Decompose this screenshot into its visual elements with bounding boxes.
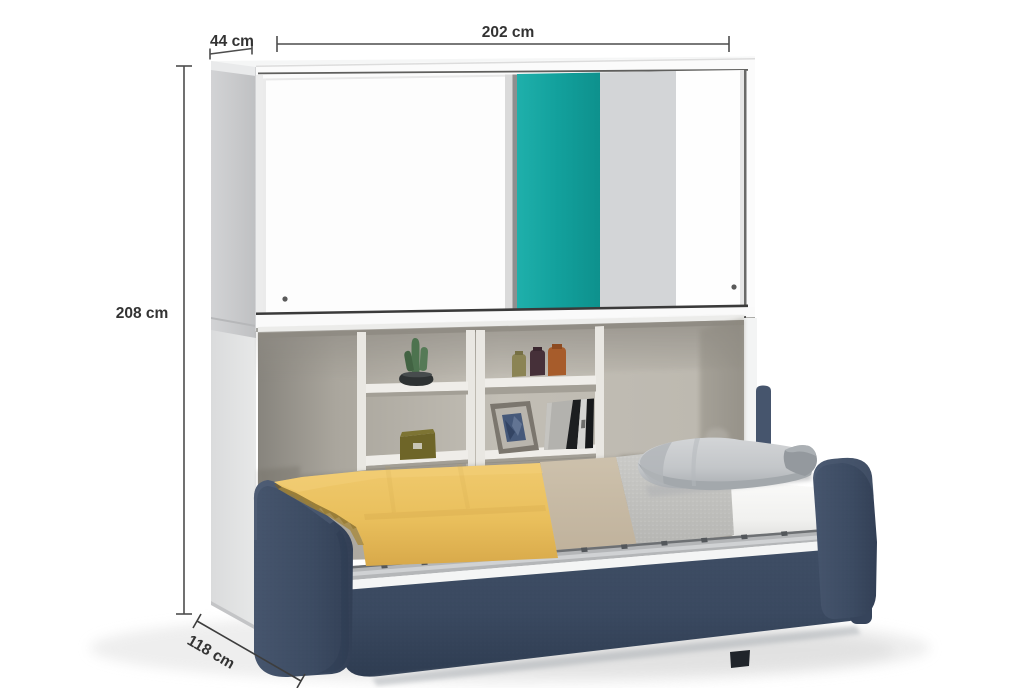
svg-text:44 cm: 44 cm: [210, 33, 254, 50]
svg-text:202 cm: 202 cm: [482, 24, 535, 41]
svg-text:208 cm: 208 cm: [116, 305, 169, 322]
